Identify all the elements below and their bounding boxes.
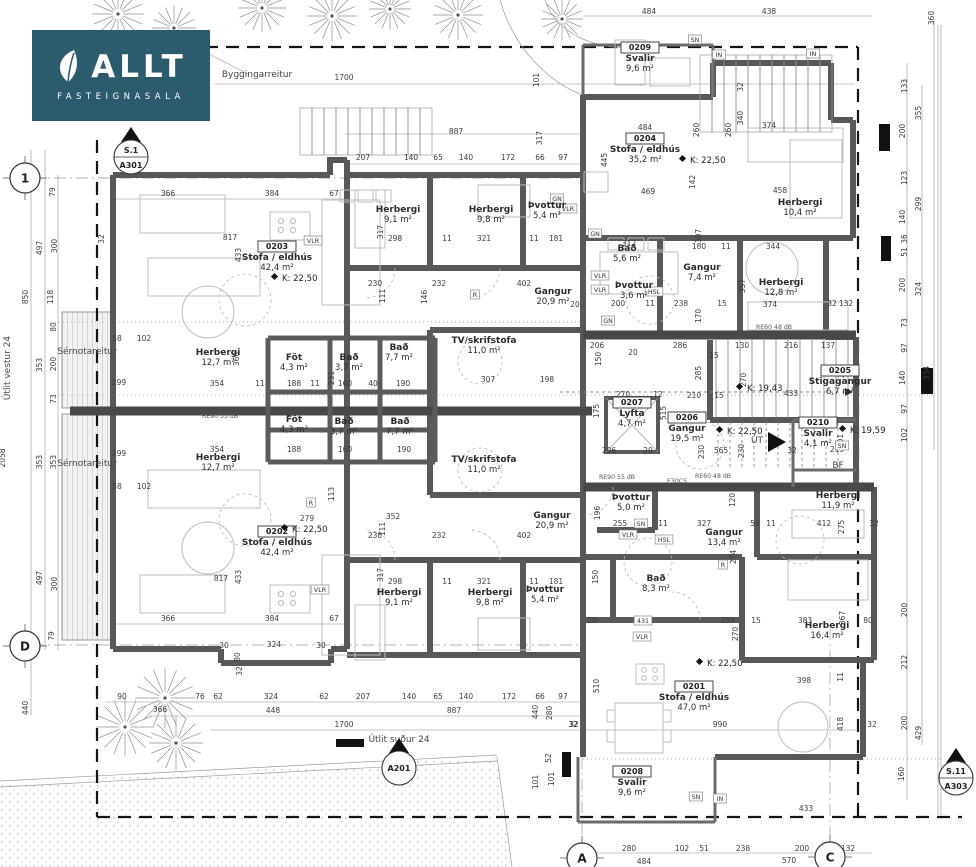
- dimension-label: 67: [329, 189, 339, 198]
- dimension-label: 469: [641, 187, 656, 196]
- dimension-label: 300: [50, 577, 59, 592]
- tree-branch: [334, 0, 342, 11]
- room-label: 0209Svalir9,6 m²: [621, 42, 659, 74]
- elevation-label: K: 22,50: [282, 274, 317, 284]
- dimension-label: 175: [592, 404, 601, 419]
- tree-icon: [307, 0, 357, 41]
- dimension-label: 32: [827, 299, 837, 308]
- section-marker: A201: [382, 738, 416, 785]
- tree-branch: [176, 8, 183, 24]
- wall-tag-label: RE60 48 dB: [756, 324, 792, 331]
- dimension-label: 56: [750, 519, 760, 528]
- dimension-label: 317: [535, 131, 544, 146]
- tree-branch: [463, 17, 481, 25]
- room-area: 12,7 m²: [201, 358, 234, 368]
- room-area: 12,8 m²: [764, 288, 797, 298]
- tree-icon: [369, 0, 411, 30]
- room-name: Föt: [286, 353, 303, 363]
- dimension-label: 90: [117, 692, 127, 701]
- dimension-label: 11: [442, 577, 452, 586]
- dimension-label: 188: [287, 379, 302, 388]
- tree-branch: [435, 17, 453, 25]
- tree-branch: [178, 718, 186, 738]
- tree-branch: [371, 1, 387, 7]
- tree-branch: [566, 21, 582, 27]
- dimension-label: 32: [867, 720, 877, 729]
- dimension-label: 1700: [334, 720, 353, 729]
- room-name: Gangur: [683, 263, 721, 273]
- dimension-label: 565: [714, 446, 729, 455]
- dimension-label: 160: [338, 445, 353, 454]
- tree-branch: [314, 20, 328, 34]
- dimension-label: 97: [558, 692, 568, 701]
- dimension-label: 20: [643, 446, 653, 455]
- wall-tag-label: 431: [637, 618, 649, 625]
- dimension-label: 97: [558, 153, 568, 162]
- dimension-label: 510: [592, 679, 601, 694]
- wall-tag-label: GN: [590, 231, 600, 238]
- room-area: 9,8 m²: [476, 598, 504, 608]
- dimension-label: 30: [316, 641, 326, 650]
- dimension-label: 484: [642, 7, 657, 16]
- dimension-label: 402: [517, 531, 532, 540]
- tree-icon: [433, 0, 483, 40]
- dimension-label: 111: [378, 522, 387, 537]
- tree-branch: [158, 12, 170, 24]
- room-area: 47,0 m²: [677, 703, 710, 713]
- dimension-label: 299: [914, 197, 923, 212]
- dimension-label: 344: [766, 242, 781, 251]
- dimension-label: 324: [914, 282, 923, 297]
- dimension-label: 307: [481, 375, 496, 384]
- dimension-label: 384: [265, 614, 280, 623]
- room-area: 4,3 m²: [280, 425, 308, 435]
- room-name: Bað: [617, 244, 636, 254]
- tree-branch: [554, 23, 560, 39]
- tree-branch: [123, 16, 142, 24]
- dimension-label: 65: [433, 692, 443, 701]
- room-label: 0210Svalir4,1 m²: [799, 417, 837, 449]
- wall-tag-label: IN: [717, 796, 724, 803]
- dimension-label: 113: [327, 487, 336, 502]
- staircase-top-left: [300, 108, 432, 155]
- dimension-label: 307: [694, 229, 703, 244]
- room-label: 0208Svalir9,6 m²: [613, 766, 651, 798]
- dimension-label: 327: [697, 519, 712, 528]
- room-name: Bað: [646, 574, 665, 584]
- dimension-label: 200: [898, 278, 907, 293]
- elevation-diamond-icon: [696, 658, 703, 665]
- tree-branch: [169, 677, 186, 694]
- tree-branch: [264, 0, 271, 4]
- dimension-label: 20: [587, 616, 597, 625]
- dimension-label: 80: [863, 616, 873, 625]
- wall-tag-label: GN: [603, 318, 613, 325]
- section-marker-bottom: A303: [945, 782, 968, 791]
- tree-branch: [137, 687, 159, 696]
- tree-center: [560, 17, 563, 20]
- dimension-label: 438: [762, 7, 777, 16]
- tree-branch: [166, 718, 174, 738]
- room-name: Föt: [286, 415, 303, 425]
- elevation-label: K: 19,43: [747, 384, 782, 394]
- dimension-label: 172: [502, 692, 517, 701]
- room-area: 10,4 m²: [783, 208, 816, 218]
- tree-branch: [371, 11, 387, 17]
- dimension-label: 133: [900, 79, 909, 94]
- room-area: 9,1 m²: [384, 215, 412, 225]
- tree-branch: [166, 748, 174, 768]
- dimension-label: 97: [900, 343, 909, 353]
- dimension-label: 120: [728, 493, 737, 508]
- room-name: Lyfta: [619, 409, 644, 419]
- elevation-diamond-icon: [716, 426, 723, 433]
- room-name: TV/skrifstofa: [451, 336, 516, 346]
- dimension-label: 317: [376, 225, 385, 240]
- tree-center: [116, 12, 119, 15]
- dimension-label: 11: [529, 234, 539, 243]
- dimension-label: 130: [735, 341, 750, 350]
- exit-arrow: [768, 432, 786, 452]
- tree-branch: [240, 10, 258, 17]
- tree-branch: [94, 16, 113, 24]
- tree-branch: [322, 0, 330, 11]
- room-label: Gangur13,4 m²: [705, 528, 743, 548]
- dimension-label: 80: [233, 652, 242, 662]
- dimension-label: 132: [839, 299, 854, 308]
- dimension-label: 32: [736, 82, 745, 92]
- dimension-label: 20: [570, 300, 580, 309]
- elevation-label: K: 22,50: [690, 156, 725, 166]
- room-label: 0204Stofa / eldhús35,2 m²: [610, 133, 680, 165]
- room-name: Stofa / eldhús: [242, 538, 312, 548]
- room-name: Bað: [390, 417, 409, 427]
- dimension-label: 137: [821, 341, 836, 350]
- tree-branch: [129, 731, 145, 747]
- room-label: Bað5,6 m²: [613, 244, 641, 264]
- dimension-label: 274: [729, 550, 738, 565]
- room-label: Herbergi12,7 m²: [196, 348, 241, 368]
- dimension-label: 188: [287, 445, 302, 454]
- elevation-diamond-icon: [679, 155, 686, 162]
- dimension-label: 255: [613, 519, 628, 528]
- room-area: 11,9 m²: [821, 501, 854, 511]
- room-area: 7,4 m²: [688, 273, 716, 283]
- room-area: 20,9 m²: [536, 297, 569, 307]
- tree-branch: [94, 4, 113, 12]
- tree-branch: [130, 716, 151, 725]
- dimension-label: 111: [378, 289, 387, 304]
- room-label: Bað3,7 m²: [330, 417, 358, 437]
- tree-center: [330, 14, 333, 17]
- dimension-label: 440: [531, 705, 540, 720]
- dimension-label: 11: [658, 519, 668, 528]
- dimension-label: 200: [49, 357, 58, 372]
- dimension-label: 30: [219, 641, 229, 650]
- room-id: 0201: [683, 682, 706, 691]
- tree-branch: [123, 4, 142, 12]
- room-name: Herbergi: [759, 278, 804, 288]
- wall-tag-label: VLR: [622, 532, 635, 539]
- tree-branch: [322, 21, 330, 39]
- grid-bubble: 1: [3, 156, 47, 200]
- dimension-label: 321: [477, 577, 492, 586]
- tree-branch: [171, 700, 193, 709]
- dimension-label: 190: [396, 379, 411, 388]
- dimension-label: 51: [699, 844, 709, 853]
- dimension-label: 280: [622, 844, 637, 853]
- tree-branch: [157, 747, 172, 762]
- tree-icon: [149, 716, 203, 770]
- dimension-label: 433: [784, 389, 799, 398]
- dimension-label: 458: [773, 186, 788, 195]
- room-label: Föt4,3 m²: [280, 353, 308, 373]
- dimension-label: 76: [195, 692, 205, 701]
- site-ground: [0, 755, 512, 867]
- dimension-label: 270: [731, 627, 740, 642]
- tree-branch: [98, 716, 119, 725]
- floor-plan-page: 4844383601700887101317207140651401726697…: [0, 0, 976, 867]
- dimension-label: 515: [659, 406, 668, 421]
- room-label: 0207Lyfta4,7 m²: [613, 397, 651, 429]
- room-name: Þvottur: [526, 585, 565, 595]
- floor-plan-drawing: 4844383601700887101317207140651401726697…: [0, 0, 976, 867]
- grid-bubble-label: A: [577, 852, 587, 866]
- tree-branch: [167, 670, 176, 692]
- wall-tag-label: R: [473, 292, 478, 299]
- dimension-label: 384: [265, 189, 280, 198]
- tree-branch: [144, 677, 161, 694]
- room-area: 3,7 m²: [335, 363, 363, 373]
- dimension-label: 142: [688, 175, 697, 190]
- dimension-label: 140: [404, 153, 419, 162]
- dimension-label: 324: [267, 640, 282, 649]
- tree-branch: [375, 12, 387, 24]
- tree-branch: [253, 12, 260, 30]
- dimension-label: 15: [751, 616, 761, 625]
- room-label: Gangur20,9 m²: [534, 287, 572, 307]
- tree-branch: [265, 11, 279, 25]
- dimension-label: 11: [721, 242, 731, 251]
- dimension-label: 123: [900, 171, 909, 186]
- room-name: Stofa / eldhús: [659, 693, 729, 703]
- dimension-label: 150: [594, 352, 603, 367]
- dimension-label: 101: [547, 772, 556, 787]
- tree-branch: [127, 700, 136, 721]
- tree-branch: [129, 706, 145, 722]
- dimension-label: 230: [697, 445, 706, 460]
- dimension-label: 40: [368, 379, 378, 388]
- dimension-label: 196: [593, 506, 602, 521]
- tree-branch: [565, 4, 577, 16]
- wall-tag-label: RE90 55 dB: [202, 413, 238, 420]
- room-id: 0205: [829, 366, 852, 375]
- dimension-label: 445: [600, 153, 609, 168]
- tree-branch: [154, 670, 163, 692]
- wall-tag-label: VLR: [314, 587, 327, 594]
- dimension-label: 198: [540, 375, 555, 384]
- dimension-label: 299: [112, 449, 127, 458]
- dimension-label: 15: [717, 299, 727, 308]
- annotation-label: BF: [832, 461, 843, 471]
- room-area: 3,6 m²: [620, 291, 648, 301]
- tree-branch: [167, 704, 176, 726]
- room-name: Stigagangur: [809, 377, 872, 387]
- dimension-label: 238: [736, 844, 751, 853]
- room-name: Svalir: [617, 778, 647, 788]
- tree-branch: [382, 13, 388, 29]
- dimension-label: 497: [35, 571, 44, 586]
- dimension-label: 200: [900, 603, 909, 618]
- wall-tag-label: VLR: [594, 287, 607, 294]
- dimension-label: 32: [235, 666, 244, 676]
- room-area: 3,7 m²: [330, 427, 358, 437]
- room-area: 9,6 m²: [626, 64, 654, 74]
- dimension-label: 102: [675, 844, 690, 853]
- dimension-label: 374: [762, 121, 777, 130]
- tree-branch: [245, 11, 259, 25]
- room-area: 5,4 m²: [533, 211, 561, 221]
- dimension-label: 497: [35, 241, 44, 256]
- room-id: 0210: [807, 418, 830, 427]
- dimension-label: 11: [255, 379, 265, 388]
- room-name: Herbergi: [805, 621, 850, 631]
- dimension-label: 67: [329, 614, 339, 623]
- dimension-label: 850: [21, 290, 30, 305]
- room-id: 0208: [621, 767, 644, 776]
- room-label: TV/skrifstofa11,0 m²: [451, 455, 516, 475]
- room-name: Herbergi: [376, 205, 421, 215]
- tree-center: [174, 741, 177, 744]
- wall-tag-label: VLR: [636, 634, 649, 641]
- tree-branch: [180, 724, 195, 739]
- dimension-label: 440: [21, 701, 30, 716]
- grid-bubble-label: C: [826, 851, 835, 865]
- dimension-label: 990: [713, 720, 728, 729]
- dimension-label: 101: [531, 775, 540, 790]
- room-name: Herbergi: [778, 198, 823, 208]
- tree-branch: [336, 20, 350, 34]
- tree-branch: [266, 10, 284, 17]
- dimension-label: 51: [900, 247, 909, 257]
- wall-tag-label: SN: [637, 521, 646, 528]
- wall-tag-label: RE60 48 dB: [695, 473, 731, 480]
- dimension-label: 207: [356, 153, 371, 162]
- room-name: Stofa / eldhús: [610, 145, 680, 155]
- dimension-label: 321: [477, 234, 492, 243]
- dimension-label: 352: [386, 512, 401, 521]
- dimension-label: 232: [432, 531, 447, 540]
- dimension-label: 20: [628, 348, 638, 357]
- tree-center: [163, 696, 166, 699]
- dimension-label: 298: [388, 234, 403, 243]
- tree-branch: [460, 20, 468, 38]
- dimension-label: 340: [736, 111, 745, 126]
- room-area: 5,0 m²: [617, 503, 645, 513]
- wall-tag-label: HSL: [658, 537, 671, 544]
- room-name: Stofa / eldhús: [242, 253, 312, 263]
- room-name: Gangur: [668, 424, 706, 434]
- dimension-label: 317: [376, 568, 385, 583]
- dimension-label: 102: [137, 482, 152, 491]
- dimension-label: 433: [234, 570, 243, 585]
- room-id: 0203: [266, 242, 288, 251]
- tree-icon: [238, 0, 286, 32]
- tree-branch: [564, 0, 570, 15]
- room-id: 0206: [676, 413, 699, 422]
- tree-branch: [181, 733, 201, 741]
- tree-branch: [180, 747, 195, 762]
- room-label: Bað7,7 m²: [385, 343, 413, 363]
- tree-branch: [337, 18, 355, 26]
- dimension-label: 210: [687, 391, 702, 400]
- room-label: Herbergi12,7 m²: [196, 453, 241, 473]
- room-label: Gangur7,4 m²: [683, 263, 721, 283]
- tree-branch: [334, 21, 342, 39]
- room-area: 9,1 m²: [385, 598, 413, 608]
- room-name: TV/skrifstofa: [451, 455, 516, 465]
- dimension-label: 65: [433, 153, 443, 162]
- tree-branch: [171, 687, 193, 696]
- room-area: 6,7 m²: [826, 387, 854, 397]
- dimension-label: 200: [898, 124, 907, 139]
- tree-branch: [104, 706, 120, 722]
- grid-bubble-label: D: [20, 640, 30, 654]
- tree-center: [260, 6, 263, 9]
- dimension-label: 366: [153, 705, 168, 714]
- room-area: 19,5 m²: [670, 434, 703, 444]
- dimension-label: 151: [721, 616, 736, 625]
- tree-branch: [565, 22, 577, 34]
- dimension-label: 36: [900, 234, 909, 244]
- room-name: Bað: [334, 417, 353, 427]
- tree-branch: [392, 13, 398, 29]
- dimension-label: 62: [213, 692, 223, 701]
- dimension-label: 32: [869, 519, 879, 528]
- tree-branch: [547, 22, 559, 34]
- tree-branch: [435, 5, 453, 13]
- dimension-label: 353: [35, 358, 44, 373]
- tree-branch: [122, 0, 137, 10]
- dimension-label: 32: [787, 446, 797, 455]
- room-label: 0201Stofa / eldhús47,0 m²: [659, 681, 729, 713]
- room-name: Bað: [389, 343, 408, 353]
- wall-tag-label: SN: [838, 443, 847, 450]
- dimension-label: 238: [674, 299, 689, 308]
- leaf-icon: [55, 49, 85, 85]
- tree-branch: [151, 745, 171, 753]
- room-name: Herbergi: [816, 491, 861, 501]
- dimension-label: 73: [49, 394, 58, 404]
- dimension-label: 97: [900, 404, 909, 414]
- room-id: 0209: [629, 43, 652, 52]
- room-area: 4,3 m²: [280, 363, 308, 373]
- dimension-label: 298: [388, 577, 403, 586]
- dimension-label: 285: [694, 366, 703, 381]
- dimension-label: 817: [223, 233, 238, 242]
- tree-branch: [98, 729, 119, 738]
- dimension-label: 429: [914, 726, 923, 741]
- dimension-label: 140: [402, 692, 417, 701]
- tree-branch: [104, 731, 120, 747]
- room-name: Herbergi: [377, 588, 422, 598]
- room-label: 0203Stofa / eldhús42,4 m²: [242, 241, 312, 273]
- tree-branch: [543, 21, 559, 27]
- dimension-label: 817: [214, 574, 229, 583]
- dimension-label: 200: [795, 844, 810, 853]
- room-name: Þvottur: [612, 493, 651, 503]
- elevation-label: K: 19,59: [850, 426, 885, 436]
